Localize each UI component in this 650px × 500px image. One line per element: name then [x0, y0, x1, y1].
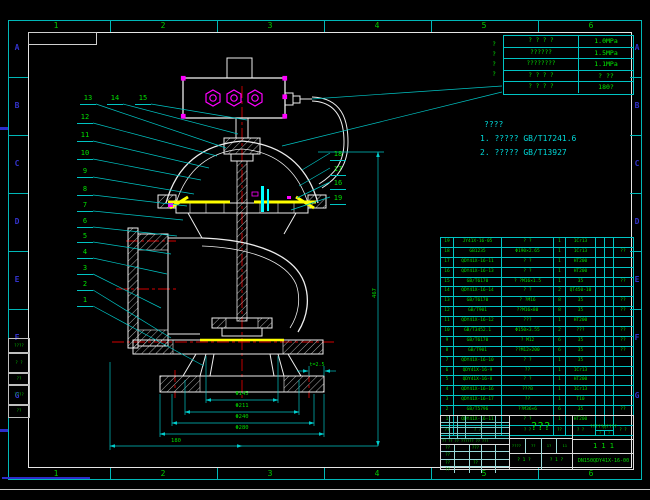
bom-row-7: 7QDY41X-16-10? ?135 [441, 357, 633, 367]
bom-cell: 1 [553, 396, 565, 405]
sig-row-0: ????? [441, 445, 509, 452]
spec-side-char-3: ? [489, 71, 499, 81]
sig-cell-2-4 [495, 460, 509, 466]
spec-value-1: 1.5MPa [578, 48, 633, 59]
margin-block-1: ? ? [8, 352, 30, 374]
bottom-screen-line [0, 489, 650, 490]
bom-cell: ? ?M16 [501, 297, 553, 306]
sig-cell-1-3 [481, 452, 494, 458]
bom-cell: 3 [441, 396, 453, 405]
bom-row-11: 11QDY41X-16-12???1HT200 [441, 317, 633, 327]
cad-drawing-sheet[interactable]: 112233445566AABBCCDDEEFFGG ????? ???????… [0, 0, 650, 500]
spec-value-0: 1.0MPa [578, 36, 633, 47]
bom-row-14: 14QDY41X-16-14? ?2QT450-10 [441, 287, 633, 297]
bom-cell: 1 [553, 317, 565, 326]
bom-cell: ??M36×6 [501, 406, 553, 415]
spec-label-0: ? ? ? ? [504, 36, 578, 47]
bom-cell: ? ? [501, 258, 553, 267]
bom-cell: ?? [613, 297, 632, 306]
bom-cell [604, 248, 613, 257]
bom-cell: 35 [565, 347, 595, 356]
bom-cell: QDY41X-16-9 [453, 367, 501, 376]
callout-13: 13 [80, 94, 96, 105]
spec-label-2: ???????? [504, 59, 578, 70]
title-sub-cells: ??????1?11 [509, 438, 572, 454]
spec-row-1: ??????1.5MPa [504, 48, 633, 60]
dim-width-180: 180 [161, 438, 191, 444]
bom-cell: Φ150×3.55 [501, 327, 553, 336]
bom-cell [604, 396, 613, 405]
bom-cell [595, 337, 604, 346]
spec-side-char-2: ? [489, 61, 499, 71]
parts-list-table: 19JY41X-16-05? ?11Cr1318GB1235Φ190×2.651… [440, 237, 634, 416]
bom-cell [613, 386, 632, 395]
bom-cell: 6 [553, 347, 565, 356]
sheet-cell-0: ? 1 ? [509, 453, 539, 469]
bom-cell [604, 406, 613, 415]
bom-cell: QT450-10 [565, 287, 595, 296]
callout-16: 16 [330, 179, 346, 190]
spec-row-3: ? ? ? ?? ?? [504, 71, 633, 83]
bom-cell [595, 238, 604, 247]
bom-cell: 17 [441, 258, 453, 267]
bom-row-4: 4QDY41X-16-16???B11Cr13 [441, 386, 633, 396]
zone-number-bottom-1: 1 [50, 469, 62, 478]
sheet-count-cells: ? 1 ?? 1 ? [509, 453, 572, 469]
bom-cell [595, 327, 604, 336]
bom-cell: ?? [501, 367, 553, 376]
callout-7: 7 [77, 201, 93, 212]
bom-cell: 1Cr13 [565, 248, 595, 257]
bom-cell: 35 [565, 357, 595, 366]
bom-cell [613, 367, 632, 376]
sig-cell-1-1 [454, 452, 468, 458]
rev-line-1 [441, 427, 509, 428]
bom-cell: ? ? [501, 268, 553, 277]
bom-cell [595, 367, 604, 376]
bom-cell [595, 386, 604, 395]
bom-cell: 1 [553, 278, 565, 287]
bom-cell [595, 278, 604, 287]
bom-cell [595, 357, 604, 366]
bom-cell: 7 [441, 357, 453, 366]
zone-tick-bottom-3 [431, 468, 432, 480]
notes-heading: ???? [484, 120, 630, 129]
bom-cell: ? ?M16×1.5 [501, 278, 553, 287]
bom-cell: QDY41X-16-14 [453, 287, 501, 296]
zone-tick-bottom-1 [217, 468, 218, 480]
bom-cell: 11 [441, 317, 453, 326]
bom-cell [613, 396, 632, 405]
bom-cell [595, 396, 604, 405]
bom-cell [604, 347, 613, 356]
bom-cell: GB/T901 [453, 307, 501, 316]
bom-cell: ? ? [501, 238, 553, 247]
bom-cell: 12 [441, 307, 453, 316]
zone-tick-bottom-0 [110, 468, 111, 480]
bom-row-12: 12GB/T901??M16×80835?? [441, 307, 633, 317]
zone-tick-left-1 [8, 135, 28, 136]
bom-cell: GB/T6170 [453, 278, 501, 287]
bom-row-6: 6QDY41X-16-9??11Cr13 [441, 367, 633, 377]
bom-cell [604, 317, 613, 326]
centering-mark-bottom [2, 477, 90, 479]
spec-value-3: ? ?? [578, 71, 633, 82]
sig-cell-0-2: ??? [469, 445, 481, 451]
dim-phi240: Φ240 [222, 414, 262, 420]
sig-cell-3-1 [454, 467, 468, 473]
callout-10: 10 [77, 149, 93, 160]
zone-letter-left-B: B [11, 101, 23, 110]
bom-cell [613, 268, 632, 277]
spec-value-2: 1.1MPa [578, 59, 633, 70]
bom-cell: QDY41X-16-11 [453, 258, 501, 267]
title-sub-cell-0: ???? [509, 438, 524, 453]
spec-table: ? ? ? ?1.0MPa??????1.5MPa????????1.1MPa?… [503, 35, 634, 95]
bom-cell [604, 357, 613, 366]
bom-cell [604, 327, 613, 336]
bom-cell: 1 [553, 248, 565, 257]
callout-8: 8 [77, 185, 93, 196]
rev-vline-2 [465, 416, 466, 438]
bom-cell: 15 [441, 278, 453, 287]
bom-cell [595, 317, 604, 326]
zone-number-bottom-2: 2 [157, 469, 169, 478]
bom-cell: 35 [565, 278, 595, 287]
sig-cell-1-2 [469, 452, 481, 458]
bom-cell: ?? [501, 396, 553, 405]
zone-letter-left-D: D [11, 217, 23, 226]
bom-cell [613, 287, 632, 296]
zone-tick-top-3 [431, 20, 432, 32]
bom-cell: HT200 [565, 268, 595, 277]
callout-12: 12 [77, 113, 93, 124]
bom-cell: ?? [613, 337, 632, 346]
spec-label-1: ?????? [504, 48, 578, 59]
sig-cell-2-3 [481, 460, 494, 466]
rev-vline-3 [481, 416, 482, 438]
sig-cell-0-4 [495, 445, 509, 451]
title-sub-cell-3: 11 [556, 438, 572, 453]
zone-tick-left-2 [8, 193, 28, 194]
dim-phi211: Φ211 [222, 403, 262, 409]
bom-cell: 6 [553, 337, 565, 346]
dim-height-467: 467 [372, 282, 378, 304]
company-name: ?????????? [572, 416, 634, 440]
bom-cell [595, 406, 604, 415]
sig-cell-3-3 [481, 467, 494, 473]
bom-cell: GB/T901 [453, 347, 501, 356]
zone-letter-left-C: C [11, 159, 23, 168]
callout-14: 14 [107, 94, 123, 105]
callout-9: 9 [77, 167, 93, 178]
bom-cell: ? ? [501, 287, 553, 296]
bom-cell: 1 [553, 357, 565, 366]
bom-cell [604, 238, 613, 247]
zone-letter-left-A: A [11, 43, 23, 52]
bom-cell: 1 [553, 386, 565, 395]
zone-letter-right-C: C [631, 159, 643, 168]
sig-cell-0-1 [454, 445, 468, 451]
spec-row-2: ????????1.1MPa [504, 59, 633, 71]
bom-cell: 6 [553, 406, 565, 415]
sig-cell-0-3 [481, 445, 494, 451]
bom-cell: 35 [565, 307, 595, 316]
zone-number-top-2: 2 [157, 21, 169, 30]
callout-6: 6 [77, 217, 93, 228]
bom-cell [604, 386, 613, 395]
bom-cell [613, 258, 632, 267]
bom-cell: 35 [565, 406, 595, 415]
zone-tick-top-4 [538, 20, 539, 32]
bom-cell: 8 [441, 347, 453, 356]
zone-tick-top-1 [217, 20, 218, 32]
bom-cell: 1Cr13 [565, 238, 595, 247]
spec-label-3: ? ? ? ? [504, 71, 578, 82]
callout-19: 19 [330, 194, 346, 205]
bom-cell: 1 [553, 268, 565, 277]
spec-side-char-0: ? [489, 41, 499, 51]
zone-tick-left-3 [8, 251, 28, 252]
bom-cell: 9 [441, 337, 453, 346]
zone-tick-left-0 [8, 77, 28, 78]
note-item-0: 1. ????? GB/T17241.6 [480, 134, 630, 143]
bom-cell: 1 [553, 258, 565, 267]
zone-letter-right-D: D [631, 217, 643, 226]
bom-cell [604, 278, 613, 287]
spec-row-4: ? ? ? ?180? [504, 82, 633, 93]
sheet-cell-1: ? 1 ? [541, 453, 572, 469]
bom-cell: HT200 [565, 376, 595, 385]
bom-cell [595, 347, 604, 356]
bom-cell: 1Cr13 [565, 386, 595, 395]
bom-cell: GB/T6170 [453, 337, 501, 346]
bom-cell [604, 287, 613, 296]
bom-cell: QDY41X-16-12 [453, 317, 501, 326]
bom-row-13: 13GB/T6170? ?M16835?? [441, 297, 633, 307]
bom-cell [604, 337, 613, 346]
bom-cell [595, 268, 604, 277]
zone-letter-right-B: B [631, 101, 643, 110]
bom-row-10: 10GB/T3452.1Φ150×3.552????? [441, 327, 633, 337]
spec-value-4: 180? [578, 82, 633, 93]
bom-cell: ??? [501, 317, 553, 326]
drawing-title: ??? [509, 416, 572, 439]
bom-row-15: 15GB/T6170? ?M16×1.5135?? [441, 278, 633, 288]
rev-vline-0 [449, 416, 450, 438]
sig-row-2: ???? [441, 460, 509, 467]
bom-cell: ?? [613, 406, 632, 415]
zone-tick-right-1 [630, 135, 642, 136]
bom-row-5: 5QDY41X-16-8? ?1HT200 [441, 376, 633, 386]
sig-cell-1-4 [495, 452, 509, 458]
bom-cell: ?? [613, 347, 632, 356]
callout-2: 2 [77, 280, 93, 291]
title-sub-cell-2: 1? [541, 438, 557, 453]
title-sub-cell-1: ?? [525, 438, 541, 453]
bom-cell [595, 307, 604, 316]
bom-cell: QDY41X-16-13 [453, 268, 501, 277]
bom-cell: 1 [553, 376, 565, 385]
bom-cell: QDY41X-16-16 [453, 386, 501, 395]
bom-cell: 6 [441, 367, 453, 376]
bom-cell: JY41X-16-05 [453, 238, 501, 247]
zone-number-bottom-3: 3 [264, 469, 276, 478]
zone-tick-bottom-2 [324, 468, 325, 480]
bom-cell: 5 [441, 376, 453, 385]
bom-cell: 35 [565, 297, 595, 306]
zone-tick-right-2 [630, 193, 642, 194]
rev-vline-4 [495, 416, 496, 438]
sig-row-1: ?? [441, 452, 509, 459]
bom-cell [604, 376, 613, 385]
zone-letter-left-E: E [11, 275, 23, 284]
sig-cell-3-0: ?? [441, 467, 454, 473]
bom-cell: ?? [613, 327, 632, 336]
dim-note-t25: t=2.5 [300, 362, 334, 368]
bom-cell [604, 297, 613, 306]
bom-cell: QDY41X-16-10 [453, 357, 501, 366]
sig-cell-3-2 [469, 467, 481, 473]
bom-cell: 14 [441, 287, 453, 296]
bom-cell: 10 [441, 327, 453, 336]
bom-cell [613, 376, 632, 385]
sig-cell-2-1 [454, 460, 468, 466]
rev-line-2 [441, 433, 509, 434]
bom-cell: 2 [441, 406, 453, 415]
zone-number-bottom-4: 4 [371, 469, 383, 478]
bom-cell [604, 307, 613, 316]
bom-cell [604, 367, 613, 376]
bom-row-18: 18GB1235Φ190×2.6511Cr13?? [441, 248, 633, 258]
bom-cell: GB/T6170 [453, 297, 501, 306]
bom-cell: 35 [565, 337, 595, 346]
bom-cell: ? M12 [501, 337, 553, 346]
centering-mark-left-2 [0, 429, 8, 432]
bom-cell: 8 [553, 307, 565, 316]
callout-1: 1 [77, 296, 93, 307]
zone-number-top-6: 6 [585, 21, 597, 30]
zone-number-top-5: 5 [478, 21, 490, 30]
sig-cell-1-0: ?? [441, 452, 454, 458]
stage-marks-cell: 1 1 1 [572, 439, 634, 454]
callout-18: 18 [330, 150, 346, 161]
zone-tick-left-4 [8, 309, 28, 310]
bom-cell: 2 [553, 327, 565, 336]
bom-cell: ? ? [501, 376, 553, 385]
zone-tick-top-2 [324, 20, 325, 32]
bom-cell: HT200 [565, 258, 595, 267]
bom-cell: T10 [565, 396, 595, 405]
zone-number-top-3: 3 [264, 21, 276, 30]
callout-15: 15 [135, 94, 151, 105]
spec-label-4: ? ? ? ? [504, 82, 578, 93]
callout-4: 4 [77, 248, 93, 259]
bom-cell: 13 [441, 297, 453, 306]
spec-table-side-label: ???? [489, 41, 499, 81]
bom-cell: ? ? [501, 357, 553, 366]
bom-cell [613, 238, 632, 247]
bom-cell [595, 258, 604, 267]
bom-cell: ??M16×80 [501, 307, 553, 316]
note-item-1: 2. ????? GB/T13927 [480, 148, 630, 157]
bom-row-9: 9GB/T6170? M12635?? [441, 337, 633, 347]
notes-block: ???? 1. ????? GB/T17241.62. ????? GB/T13… [480, 120, 630, 162]
bom-cell: GB/T3452.1 [453, 327, 501, 336]
bom-cell: QDY41X-16-8 [453, 376, 501, 385]
bom-row-17: 17QDY41X-16-11? ?1HT200 [441, 258, 633, 268]
bom-cell: 1 [553, 367, 565, 376]
bom-cell [595, 376, 604, 385]
bom-cell: ???B [501, 386, 553, 395]
bom-cell: QDY41X-16-17 [453, 396, 501, 405]
bom-row-8: 8GB/T901??M12×200635?? [441, 347, 633, 357]
sig-row-3: ?? [441, 467, 509, 473]
bom-cell: ??M12×200 [501, 347, 553, 356]
bom-cell: GB/T5796 [453, 406, 501, 415]
callout-3: 3 [77, 264, 93, 275]
bom-cell: ?? [613, 278, 632, 287]
callout-11: 11 [77, 131, 93, 142]
bom-cell [595, 248, 604, 257]
zone-number-top-1: 1 [50, 21, 62, 30]
bom-cell [595, 287, 604, 296]
bom-row-3: 3QDY41X-16-17??1T10 [441, 396, 633, 406]
bom-cell: 19 [441, 238, 453, 247]
bom-cell: 8 [553, 297, 565, 306]
bom-cell: 4 [441, 386, 453, 395]
zone-tick-top-0 [110, 20, 111, 32]
sig-cell-2-2: ?? [469, 460, 481, 466]
bom-cell [604, 268, 613, 277]
sig-cell-3-4 [495, 467, 509, 473]
bom-cell: HT200 [565, 317, 595, 326]
zone-number-bottom-6: 6 [585, 469, 597, 478]
callout-5: 5 [77, 232, 93, 243]
spec-side-char-1: ? [489, 51, 499, 61]
bom-cell: 1 [553, 238, 565, 247]
dim-phi145: Φ145 [222, 391, 262, 397]
bom-cell [613, 357, 632, 366]
bom-cell: 18 [441, 248, 453, 257]
margin-block-4: ?? [8, 404, 30, 418]
bom-cell [604, 258, 613, 267]
rev-line-0 [441, 422, 509, 423]
bom-cell: GB1235 [453, 248, 501, 257]
callout-17: 17 [330, 165, 346, 176]
bom-cell: ??? [565, 327, 595, 336]
bom-cell [613, 317, 632, 326]
bom-cell: ?? [613, 248, 632, 257]
bom-row-19: 19JY41X-16-05? ?11Cr13 [441, 238, 633, 248]
corner-reference-box [28, 32, 97, 45]
drawing-number-cell: DN150QDY41X-16-00 [572, 453, 634, 469]
bom-cell: 2 [553, 287, 565, 296]
bom-cell: Φ190×2.65 [501, 248, 553, 257]
sig-cell-0-0: ?? [441, 445, 454, 451]
zone-number-top-4: 4 [371, 21, 383, 30]
bom-cell: 16 [441, 268, 453, 277]
bom-cell [595, 297, 604, 306]
bom-row-16: 16QDY41X-16-13? ?1HT200 [441, 268, 633, 278]
sig-cell-2-0: ?? [441, 460, 454, 466]
dim-phi280: Φ280 [222, 425, 262, 431]
bom-cell: ?? [613, 307, 632, 316]
margin-block-3: ???? [8, 384, 30, 406]
spec-row-0: ? ? ? ?1.0MPa [504, 36, 633, 48]
bom-cell: 1Cr13 [565, 367, 595, 376]
title-block: ?? ?? ?? ?????? ?? ??? ????????????? ???… [440, 415, 634, 470]
